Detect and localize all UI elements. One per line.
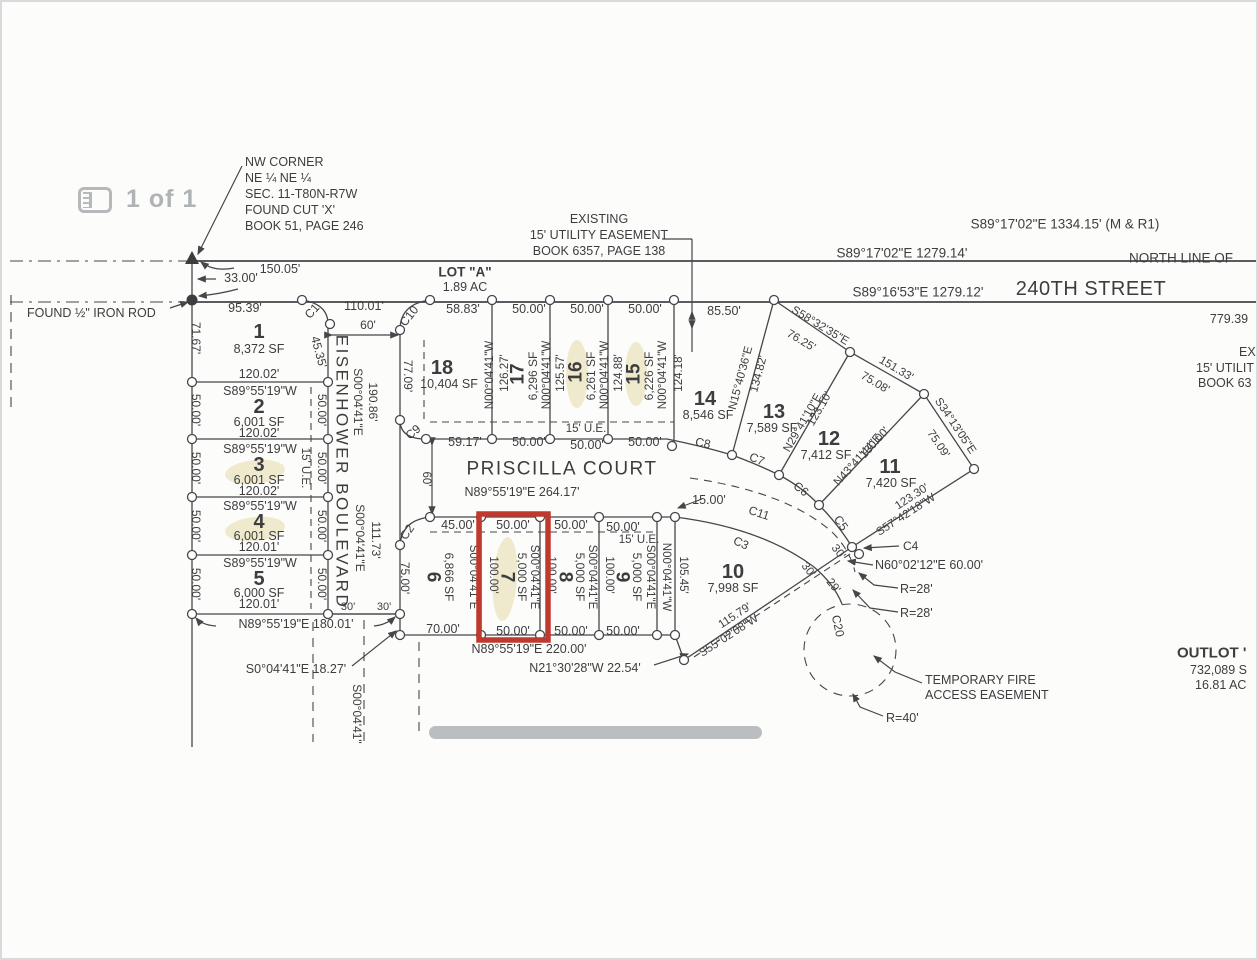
plat-label: 15' U.E. bbox=[299, 448, 311, 489]
lot-corner-node bbox=[855, 550, 864, 559]
plat-label: 70.00' bbox=[426, 622, 460, 636]
plat-label: 732,089 S bbox=[1190, 663, 1247, 677]
lot-corner-node bbox=[671, 513, 680, 522]
lot-corner-node bbox=[595, 513, 604, 522]
plat-label: LOT "A" bbox=[438, 265, 491, 280]
lot-corner-node bbox=[188, 493, 197, 502]
plat-label: 50.00' bbox=[554, 518, 588, 532]
plat-label: 5,000 SF bbox=[515, 553, 529, 602]
plat-label: R=40' bbox=[886, 711, 919, 725]
plat-label: 50.00' bbox=[628, 302, 662, 316]
plat-dashed-lines bbox=[10, 261, 896, 747]
lot-corner-node bbox=[846, 348, 855, 357]
lot-corner-node bbox=[396, 610, 405, 619]
plat-label: C4 bbox=[903, 539, 919, 553]
plat-label: 105.45' bbox=[677, 556, 689, 593]
lot-corner-node bbox=[488, 435, 497, 444]
lot-corner-node bbox=[848, 543, 857, 552]
plat-label: N00°04'41"W bbox=[484, 341, 496, 410]
plat-label: 50.00' bbox=[189, 394, 203, 426]
plat-label: 120.02' bbox=[239, 367, 280, 381]
plat-label: 50.00' bbox=[628, 435, 662, 449]
plat-label: 7,412 SF bbox=[801, 448, 852, 462]
plat-label: 60' bbox=[360, 318, 376, 332]
plat-label: 50.00' bbox=[315, 510, 329, 542]
lot-corner-node bbox=[728, 451, 737, 460]
plat-label: 30' bbox=[377, 601, 391, 613]
plat-label: SEC. 11-T80N-R7W bbox=[245, 187, 357, 201]
plat-label: 8,372 SF bbox=[234, 342, 285, 356]
plat-label: 15' UTILITY EASEMENT bbox=[530, 228, 669, 242]
lot-corner-node bbox=[815, 501, 824, 510]
page-indicator-label: 1 of 1 bbox=[126, 185, 197, 214]
lot-corner-node bbox=[324, 378, 333, 387]
lot-corner-node bbox=[396, 326, 405, 335]
plat-label: 50.00' bbox=[554, 624, 588, 638]
scanned-plat-page: 1 of 1 bbox=[0, 0, 1258, 960]
lot-corner-node bbox=[546, 296, 555, 305]
plat-label: 16.81 AC bbox=[1195, 678, 1246, 692]
plat-label: N89°55'19"E 180.01' bbox=[239, 617, 354, 631]
plat-label: 50.00' bbox=[512, 302, 546, 316]
lot-corner-node bbox=[668, 442, 677, 451]
lot-corner-node bbox=[324, 435, 333, 444]
plat-label: S0°04'41"E 18.27' bbox=[246, 662, 346, 676]
lot-corner-node bbox=[604, 296, 613, 305]
plat-label: 45.00' bbox=[441, 518, 475, 532]
lot-corner-node bbox=[324, 493, 333, 502]
section-corner-triangle-marker bbox=[185, 251, 199, 264]
iron-rod-dot-marker bbox=[187, 295, 198, 306]
plat-label: C3 bbox=[731, 533, 751, 552]
plat-label: 1.89 AC bbox=[443, 280, 487, 294]
plat-label: 6,226 SF bbox=[642, 352, 656, 401]
plat-label: TEMPORARY FIRE bbox=[925, 673, 1036, 687]
plat-label: C7 bbox=[747, 450, 767, 469]
plat-label: 120.02' bbox=[239, 426, 280, 440]
plat-label: 50.00' bbox=[315, 394, 329, 426]
lot-corner-node bbox=[770, 296, 779, 305]
plat-label: R=28' bbox=[900, 582, 933, 596]
plat-label: N00°04'41"W bbox=[599, 341, 611, 410]
lot-corner-node bbox=[422, 435, 431, 444]
plat-label: NW CORNER bbox=[245, 155, 323, 169]
plat-label: 7,420 SF bbox=[866, 476, 917, 490]
plat-label: 8 bbox=[555, 572, 576, 583]
plat-map-drawing: NW CORNERNE ¼ NE ¼SEC. 11-T80N-R7WFOUND … bbox=[2, 2, 1258, 960]
lot-corner-node bbox=[653, 513, 662, 522]
plat-label: BOOK 51, PAGE 246 bbox=[245, 219, 364, 233]
plat-label: 10 bbox=[722, 561, 744, 583]
lot-corner-node bbox=[775, 471, 784, 480]
plat-label: 50.00' bbox=[496, 518, 530, 532]
plat-label: S89°17'02"E 1334.15' (M & R1) bbox=[971, 217, 1160, 232]
plat-label: 50.00' bbox=[496, 624, 530, 638]
plat-label: C6 bbox=[791, 479, 812, 500]
plat-label: 120.01' bbox=[239, 597, 280, 611]
plat-label: 10,404 SF bbox=[420, 377, 478, 391]
plat-label: 75.09' bbox=[924, 428, 951, 460]
plat-label: C11 bbox=[747, 503, 772, 523]
plat-label: N00°04'41"W bbox=[541, 341, 553, 410]
page-indicator: 1 of 1 bbox=[78, 185, 197, 214]
lot-corner-node bbox=[546, 435, 555, 444]
plat-label: 30' bbox=[341, 601, 355, 613]
plat-label: 50.00' bbox=[315, 568, 329, 600]
plat-label: BOOK 63 bbox=[1198, 376, 1252, 390]
plat-label: C8 bbox=[694, 435, 712, 452]
plat-label: 18 bbox=[431, 357, 453, 379]
lot-corner-node bbox=[920, 390, 929, 399]
lot-corner-node bbox=[188, 610, 197, 619]
redaction-bar bbox=[429, 726, 762, 739]
lot-corner-node bbox=[188, 551, 197, 560]
plat-label: R=28' bbox=[900, 606, 933, 620]
plat-label: 50.00' bbox=[315, 452, 329, 484]
plat-label: FOUND CUT 'X' bbox=[245, 203, 335, 217]
plat-label: 71.67' bbox=[189, 322, 203, 354]
plat-label: 50.00' bbox=[189, 568, 203, 600]
plat-label: 150.05' bbox=[260, 262, 301, 276]
plat-label: 110.01' bbox=[344, 299, 384, 313]
plat-label: N00°04'41"W bbox=[660, 543, 672, 612]
plat-label: C20 bbox=[829, 614, 847, 639]
plat-label: 50.00' bbox=[606, 624, 640, 638]
plat-label: S89°17'02"E 1279.14' bbox=[837, 246, 968, 261]
plat-label: N60°02'12"E 60.00' bbox=[875, 558, 983, 572]
plat-label: 15.00' bbox=[692, 493, 726, 507]
plat-label: 9 bbox=[612, 572, 633, 583]
lot-corner-node bbox=[970, 465, 979, 474]
plat-label: 7 bbox=[497, 572, 518, 583]
plat-label: 59.17' bbox=[448, 435, 482, 449]
plat-label: 13 bbox=[763, 401, 785, 423]
plat-label: 120.02' bbox=[239, 484, 280, 498]
plat-label: 6,866 SF bbox=[442, 553, 456, 602]
plat-label: EX bbox=[1239, 345, 1256, 359]
plat-label: 6,296 SF bbox=[526, 352, 540, 401]
plat-label: 77.09' bbox=[401, 360, 415, 392]
plat-label: 60' bbox=[420, 472, 432, 487]
plat-label: S89°16'53"E 1279.12' bbox=[853, 285, 984, 300]
lot-corner-node bbox=[396, 631, 405, 640]
plat-label: S00°04'41"E bbox=[644, 545, 656, 610]
plat-label: 30' bbox=[799, 560, 818, 579]
plat-label: 95.39' bbox=[228, 301, 262, 315]
plat-label: S00°04'41"E bbox=[586, 545, 598, 610]
plat-label: 8,546 SF bbox=[683, 408, 734, 422]
plat-label: 6 bbox=[423, 572, 444, 583]
plat-label: 240TH STREET bbox=[1016, 278, 1166, 300]
lot-corner-node bbox=[396, 416, 405, 425]
plat-label: 6,261 SF bbox=[584, 352, 598, 401]
plat-label: 76.25' bbox=[785, 328, 818, 354]
plat-label: C5 bbox=[831, 513, 851, 534]
pages-icon bbox=[78, 187, 112, 213]
plat-label: 779.39 bbox=[1210, 312, 1248, 326]
lot-corner-node bbox=[670, 296, 679, 305]
lot-corner-node bbox=[326, 320, 335, 329]
lot-corner-node bbox=[188, 378, 197, 387]
plat-label: N00°04'41"W bbox=[657, 341, 669, 410]
plat-label: 75.00' bbox=[398, 562, 412, 594]
plat-label: 50.00' bbox=[512, 435, 546, 449]
plat-label: OUTLOT ' bbox=[1177, 645, 1246, 662]
lot-corner-node bbox=[653, 631, 662, 640]
plat-label: 15' U.E. bbox=[566, 423, 607, 435]
plat-label: 7,998 SF bbox=[708, 581, 759, 595]
plat-label: 151.33' bbox=[877, 354, 915, 384]
plat-label: N89°55'19"E 220.00' bbox=[472, 642, 587, 656]
plat-label: ACCESS EASEMENT bbox=[925, 688, 1049, 702]
plat-label: NE ¼ NE ¼ bbox=[245, 171, 312, 185]
plat-label: 33.00' bbox=[224, 271, 258, 285]
plat-label: FOUND ½" IRON ROD bbox=[27, 306, 156, 320]
plat-label: 15' UTILIT bbox=[1196, 361, 1254, 375]
lot-corner-node bbox=[426, 296, 435, 305]
plat-label: 1 bbox=[253, 321, 264, 343]
plat-label: 11 bbox=[879, 456, 900, 478]
lot-corner-node bbox=[595, 631, 604, 640]
plat-label: 75.08' bbox=[859, 370, 892, 396]
plat-label: S00°04'41"E bbox=[528, 545, 540, 610]
lot-corner-node bbox=[426, 513, 435, 522]
plat-label: S00°04'41"E bbox=[351, 368, 365, 435]
plat-label: BOOK 6357, PAGE 138 bbox=[533, 244, 666, 258]
lot-corner-node bbox=[604, 435, 613, 444]
plat-label: S00°04'41" bbox=[350, 684, 364, 743]
plat-label: 111.73' bbox=[369, 521, 383, 558]
lot-corner-node bbox=[488, 296, 497, 305]
lot-corner-node bbox=[671, 631, 680, 640]
plat-label: 58.83' bbox=[446, 302, 480, 316]
plat-label: N89°55'19"E 264.17' bbox=[465, 485, 580, 499]
plat-label: 50.00' bbox=[189, 452, 203, 484]
plat-label: 5,000 SF bbox=[573, 553, 587, 602]
lot-corner-node bbox=[324, 551, 333, 560]
lot-corner-node bbox=[680, 656, 689, 665]
plat-label: 50.00' bbox=[570, 438, 604, 452]
plat-label: EISENHOWER BOULEVARD bbox=[333, 335, 352, 610]
plat-label: 50.00' bbox=[570, 302, 604, 316]
plat-label: 124.18' bbox=[673, 354, 685, 391]
plat-label: NORTH LINE OF bbox=[1129, 251, 1233, 266]
plat-label: 120.01' bbox=[239, 540, 280, 554]
plat-label: 45.35' bbox=[308, 335, 330, 370]
plat-label: 190.86' bbox=[366, 383, 380, 422]
lot-corner-node bbox=[298, 296, 307, 305]
plat-label: N21°30'28"W 22.54' bbox=[529, 661, 641, 675]
plat-label: 5,000 SF bbox=[630, 553, 644, 602]
plat-label: 12 bbox=[818, 428, 840, 450]
plat-label: 85.50' bbox=[707, 304, 741, 318]
plat-label: 14 bbox=[694, 388, 717, 410]
plat-label: PRISCILLA COURT bbox=[466, 459, 657, 480]
plat-label: 50.00' bbox=[189, 510, 203, 542]
plat-label: EXISTING bbox=[570, 212, 628, 226]
plat-label: 50.00' bbox=[606, 520, 640, 534]
lot-corner-node bbox=[396, 541, 405, 550]
plat-labels: NW CORNERNE ¼ NE ¼SEC. 11-T80N-R7WFOUND … bbox=[27, 155, 1256, 744]
lot-corner-node bbox=[188, 435, 197, 444]
plat-label: S00°04'41"E bbox=[353, 504, 367, 571]
plat-label: 30' bbox=[829, 542, 848, 561]
